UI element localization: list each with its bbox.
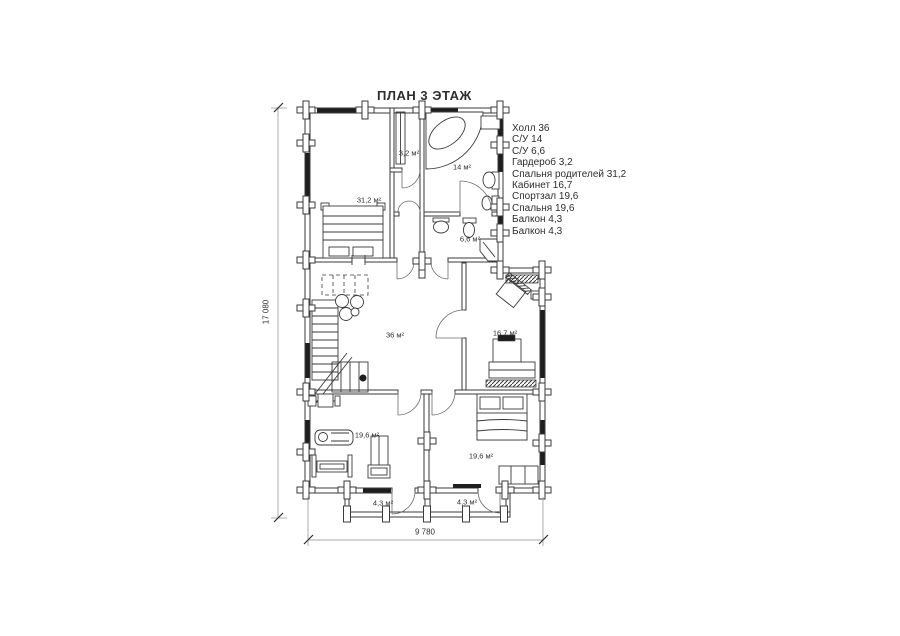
room-area-label-bedroom: 19,6 м² [469, 452, 493, 461]
room-area-label-wardrobe: 3,2 м² [399, 149, 419, 158]
dimension-total-height: 17 080 [262, 300, 271, 324]
room-area-label-balcony-left: 4,3 м² [373, 499, 393, 508]
legend-item-bedroom: Спальня 19,6 [512, 203, 626, 214]
legend-item-parents-bedroom: Спальня родителей 31,2 [512, 169, 626, 180]
legend-item-balcony-1: Балкон 4,3 [512, 214, 626, 225]
room-area-label-office: 16,7 м² [493, 329, 517, 338]
table-with-chairs-glyph [336, 295, 364, 321]
room-legend: Холл 36 С/У 14 С/У 6,6 Гардероб 3,2 Спал… [512, 123, 626, 237]
floor-plan-page: ПЛАН 3 ЭТАЖ [0, 0, 900, 636]
sink-glyph [433, 218, 449, 233]
room-area-label-gym: 19,6 м² [355, 431, 379, 440]
legend-item-wc: С/У 6,6 [512, 146, 626, 157]
room-area-label-hall: 36 м² [386, 331, 404, 340]
legend-item-wardrobe: Гардероб 3,2 [512, 157, 626, 168]
sink-glyph [483, 172, 499, 189]
legend-item-balcony-2: Балкон 4,3 [512, 226, 626, 237]
legend-item-hall: Холл 36 [512, 123, 626, 134]
dimension-total-width: 9 780 [415, 528, 435, 537]
room-area-label-bathroom: 14 м² [453, 163, 471, 172]
staircase-glyph [311, 275, 368, 403]
bathtub-glyph [423, 111, 483, 169]
legend-item-office: Кабинет 16,7 [512, 180, 626, 191]
double-bed-glyph [477, 394, 527, 440]
legend-item-gym: Спортзал 19,6 [512, 191, 626, 202]
room-area-label-balcony-right: 4,3 м² [457, 498, 477, 507]
legend-item-bathroom: С/У 14 [512, 134, 626, 145]
room-area-label-parents-bedroom: 31,2 м² [357, 196, 381, 205]
room-area-label-wc: 6,6 м² [460, 235, 480, 244]
parents-bed-glyph [321, 203, 385, 258]
